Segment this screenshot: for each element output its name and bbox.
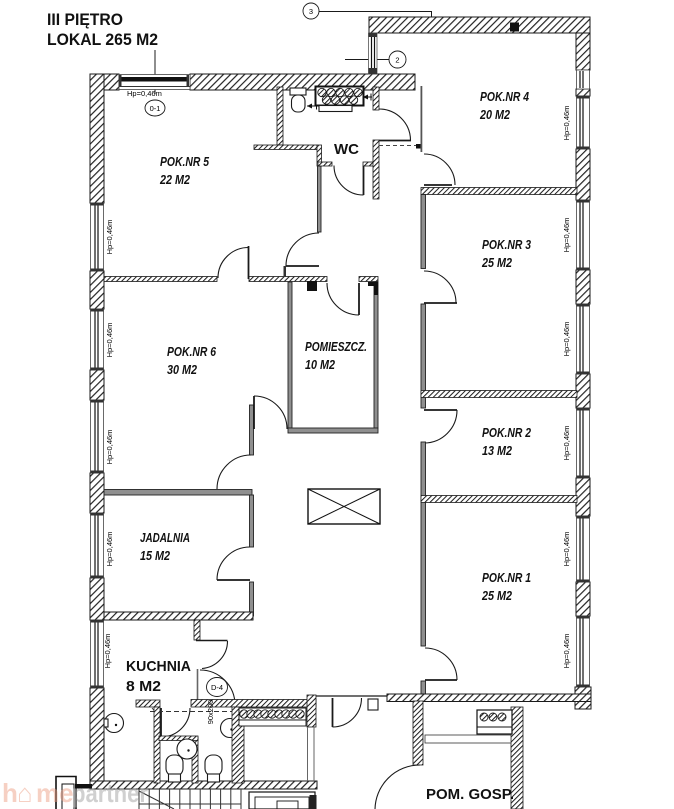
svg-text:25 M2: 25 M2 — [481, 589, 512, 603]
svg-text:15 M2: 15 M2 — [140, 549, 170, 563]
svg-text:25 M2: 25 M2 — [481, 256, 512, 270]
svg-text:JADALNIA: JADALNIA — [140, 531, 190, 545]
svg-text:10 M2: 10 M2 — [305, 358, 335, 372]
svg-text:POK.NR 2: POK.NR 2 — [482, 426, 531, 440]
svg-text:LOKAL 265 M2: LOKAL 265 M2 — [47, 30, 158, 49]
svg-text:partner: partner — [72, 778, 148, 808]
svg-text:90x200: 90x200 — [206, 700, 215, 725]
svg-text:30 M2: 30 M2 — [167, 363, 197, 377]
svg-text:WC: WC — [334, 141, 359, 158]
svg-text:POK.NR 6: POK.NR 6 — [167, 345, 217, 359]
svg-text:Hp=0,46m: Hp=0,46m — [105, 323, 114, 358]
svg-text:22 M2: 22 M2 — [159, 173, 190, 187]
svg-text:D-4: D-4 — [211, 683, 223, 692]
svg-text:h: h — [2, 778, 18, 808]
svg-text:III PIĘTRO: III PIĘTRO — [47, 10, 123, 29]
svg-text:0-1: 0-1 — [150, 104, 161, 113]
svg-text:POM. GOSP.: POM. GOSP. — [426, 786, 514, 803]
svg-text:Hp=0,46m: Hp=0,46m — [105, 532, 114, 567]
svg-text:Hp=0,46m: Hp=0,46m — [562, 322, 571, 357]
svg-text:Hp=0,46m: Hp=0,46m — [105, 430, 114, 465]
svg-text:13 M2: 13 M2 — [482, 444, 512, 458]
svg-text:Hp=0,46m: Hp=0,46m — [103, 634, 112, 669]
svg-text:Hp=0,46m: Hp=0,46m — [562, 426, 571, 461]
svg-text:8 M2: 8 M2 — [126, 678, 161, 695]
svg-text:POK.NR 1: POK.NR 1 — [482, 571, 531, 585]
svg-text:3: 3 — [309, 7, 313, 16]
svg-text:2: 2 — [395, 56, 399, 65]
svg-text:20 M2: 20 M2 — [479, 108, 510, 122]
svg-text:Hp=0,46m: Hp=0,46m — [105, 220, 114, 255]
svg-text:POK.NR 5: POK.NR 5 — [160, 155, 210, 169]
svg-text:⌂: ⌂ — [17, 778, 33, 808]
svg-text:POK.NR 4: POK.NR 4 — [480, 90, 529, 104]
svg-text:POMIESZCZ.: POMIESZCZ. — [305, 340, 367, 354]
svg-text:Hp=0,46m: Hp=0,46m — [127, 89, 162, 98]
svg-text:KUCHNIA: KUCHNIA — [126, 658, 191, 675]
svg-text:Hp=0,46m: Hp=0,46m — [562, 106, 571, 141]
svg-text:Hp=0,46m: Hp=0,46m — [562, 532, 571, 567]
svg-text:POK.NR 3: POK.NR 3 — [482, 238, 531, 252]
svg-text:Hp=0,46m: Hp=0,46m — [562, 218, 571, 253]
svg-text:Hp=0,46m: Hp=0,46m — [562, 634, 571, 669]
svg-text:me: me — [36, 778, 74, 808]
